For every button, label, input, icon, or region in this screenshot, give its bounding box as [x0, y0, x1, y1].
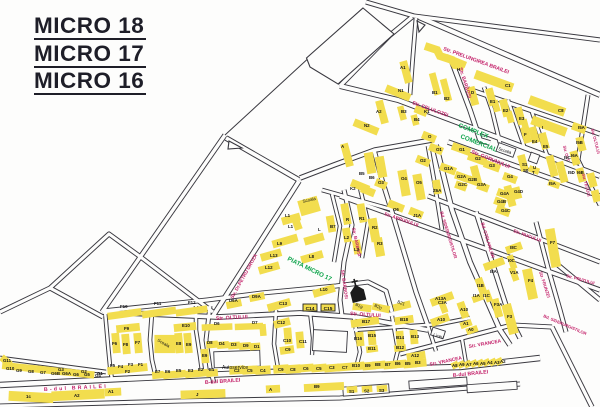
svg-text:L1: L1 [288, 224, 294, 229]
svg-text:A4: A4 [487, 360, 493, 365]
svg-text:C9: C9 [278, 367, 284, 372]
svg-text:E3: E3 [188, 368, 194, 373]
svg-text:G7: G7 [40, 370, 46, 375]
svg-text:A6: A6 [473, 361, 479, 366]
svg-text:G3: G3 [489, 163, 495, 168]
svg-text:R3: R3 [377, 241, 383, 246]
svg-text:G4C: G4C [501, 208, 511, 213]
svg-text:T: T [532, 170, 535, 175]
svg-text:C1: C1 [505, 83, 511, 88]
svg-text:G6: G6 [73, 372, 79, 377]
svg-text:B3: B3 [415, 360, 421, 365]
svg-text:S0: S0 [523, 168, 529, 173]
svg-text:E9: E9 [186, 342, 192, 347]
svg-text:C12: C12 [277, 320, 286, 325]
svg-text:Autoservice: Autoservice [222, 365, 248, 371]
svg-text:S1: S1 [349, 389, 355, 394]
svg-text:O2: O2 [420, 158, 426, 163]
svg-text:O5: O5 [416, 180, 422, 185]
svg-text:B14: B14 [396, 335, 405, 340]
svg-text:C13: C13 [279, 301, 288, 306]
svg-text:K2: K2 [350, 186, 356, 191]
svg-text:F6: F6 [112, 341, 118, 346]
svg-text:L2: L2 [344, 235, 350, 240]
svg-text:B4: B4 [414, 117, 420, 122]
svg-text:E8: E8 [176, 341, 182, 346]
svg-text:G4A: G4A [500, 191, 510, 196]
svg-text:G3A: G3A [477, 182, 487, 187]
svg-text:E2: E2 [198, 367, 204, 372]
svg-text:C9: C9 [285, 347, 291, 352]
svg-text:B8: B8 [375, 362, 381, 367]
svg-text:I: I [542, 125, 543, 130]
svg-text:S2: S2 [364, 389, 370, 394]
svg-text:B7: B7 [385, 362, 391, 367]
svg-text:H: H [457, 67, 460, 72]
svg-text:B2: B2 [444, 96, 450, 101]
svg-text:I5B: I5B [576, 140, 583, 145]
svg-text:A0: A0 [468, 327, 474, 332]
svg-text:G2C: G2C [458, 182, 468, 187]
svg-text:S3: S3 [379, 388, 385, 393]
svg-text:G3: G3 [58, 367, 64, 372]
svg-text:E5: E5 [176, 368, 182, 373]
svg-text:B11: B11 [368, 346, 376, 351]
svg-text:N1: N1 [398, 88, 404, 93]
svg-text:C11: C11 [299, 339, 307, 344]
svg-text:I1A: I1A [473, 293, 481, 298]
svg-text:G2B: G2B [468, 177, 477, 182]
svg-text:A2: A2 [376, 109, 382, 114]
svg-text:G2A: G2A [457, 174, 467, 179]
svg-text:F3A: F3A [494, 302, 503, 307]
svg-text:G8: G8 [28, 369, 34, 374]
svg-text:C6: C6 [303, 366, 309, 371]
svg-text:B12: B12 [396, 345, 405, 350]
svg-text:A9: A9 [459, 362, 465, 367]
svg-text:O1: O1 [436, 147, 442, 152]
svg-text:B5: B5 [405, 361, 411, 366]
svg-text:F7: F7 [135, 340, 141, 345]
svg-text:V1A: V1A [510, 270, 519, 275]
svg-text:A1: A1 [463, 321, 469, 326]
svg-text:D1: D1 [254, 344, 260, 349]
svg-text:B13: B13 [411, 334, 420, 339]
svg-text:G1: G1 [97, 371, 103, 376]
svg-text:C5: C5 [316, 366, 322, 371]
svg-text:E1: E1 [490, 99, 496, 104]
svg-text:F2: F2 [125, 369, 131, 374]
svg-text:F10: F10 [120, 304, 128, 309]
svg-text:1c: 1c [26, 394, 31, 399]
svg-text:I5A: I5A [578, 125, 586, 130]
svg-text:F7: F7 [550, 240, 556, 245]
svg-text:D9A: D9A [252, 294, 262, 299]
svg-text:O: O [428, 134, 432, 139]
svg-text:Z6A: Z6A [433, 188, 442, 193]
svg-text:B16: B16 [354, 336, 363, 341]
svg-text:L3: L3 [354, 247, 360, 252]
svg-text:F: F [524, 132, 527, 137]
svg-text:B6: B6 [395, 361, 401, 366]
svg-text:L1: L1 [285, 213, 291, 218]
svg-text:C8: C8 [558, 108, 564, 113]
svg-text:C8: C8 [290, 367, 296, 372]
svg-text:F11: F11 [154, 301, 162, 306]
svg-text:F3: F3 [507, 314, 513, 319]
svg-text:B9: B9 [365, 363, 371, 368]
svg-text:B3: B3 [401, 109, 407, 114]
svg-text:E5: E5 [543, 144, 549, 149]
svg-text:B1: B1 [432, 90, 438, 95]
svg-text:F3: F3 [128, 362, 134, 367]
svg-text:L10: L10 [320, 287, 328, 292]
svg-text:A1: A1 [400, 65, 406, 70]
svg-text:G1: G1 [459, 147, 465, 152]
svg-text:B18: B18 [400, 317, 409, 322]
svg-text:O4: O4 [401, 176, 407, 181]
svg-text:F8: F8 [123, 342, 129, 347]
svg-text:D: D [471, 90, 474, 95]
svg-text:L9: L9 [277, 241, 283, 246]
svg-text:K1: K1 [424, 109, 430, 114]
svg-text:F5: F5 [110, 363, 116, 368]
svg-text:G4D: G4D [514, 189, 523, 194]
svg-text:C4: C4 [260, 368, 266, 373]
svg-text:F9: F9 [124, 326, 130, 331]
svg-text:A10: A10 [437, 317, 446, 322]
svg-text:B9: B9 [314, 384, 320, 389]
svg-text:G2: G2 [475, 156, 481, 161]
svg-text:I5A: I5A [549, 181, 557, 186]
svg-text:O6: O6 [393, 207, 399, 212]
svg-text:E2: E2 [503, 108, 509, 113]
svg-text:E10: E10 [182, 323, 190, 328]
svg-text:A8: A8 [452, 363, 458, 368]
svg-text:C10: C10 [283, 338, 292, 343]
svg-text:I0C: I0C [508, 258, 516, 263]
svg-text:R2: R2 [372, 225, 378, 230]
svg-text:B15: B15 [368, 333, 377, 338]
svg-text:F1: F1 [138, 362, 144, 367]
svg-text:E4: E4 [532, 139, 538, 144]
svg-text:A5: A5 [480, 361, 486, 366]
svg-text:E9: E9 [202, 353, 208, 358]
svg-text:L8: L8 [309, 254, 315, 259]
svg-text:C3A: C3A [438, 300, 448, 305]
svg-text:I6A: I6A [571, 153, 579, 158]
svg-text:F12: F12 [188, 300, 196, 305]
svg-text:D7: D7 [252, 320, 258, 325]
svg-text:L12: L12 [265, 265, 273, 270]
svg-text:D4: D4 [219, 341, 225, 346]
svg-text:N2: N2 [364, 123, 370, 128]
svg-text:D8: D8 [207, 340, 213, 345]
svg-text:A12: A12 [411, 353, 420, 358]
svg-text:D9: D9 [243, 343, 249, 348]
svg-text:E3: E3 [519, 116, 525, 121]
svg-text:C14: C14 [306, 306, 315, 312]
svg-text:B7: B7 [330, 224, 336, 229]
svg-text:S1: S1 [522, 162, 528, 167]
svg-text:G4: G4 [507, 174, 513, 179]
svg-text:L: L [318, 227, 321, 232]
svg-text:G10: G10 [6, 366, 15, 371]
svg-text:I5D: I5D [568, 170, 575, 175]
svg-text:L13: L13 [270, 253, 278, 258]
svg-text:D6A: D6A [229, 298, 239, 303]
svg-text:I1C: I1C [483, 293, 491, 298]
svg-text:I8A: I8A [490, 269, 498, 274]
svg-text:A7: A7 [466, 362, 472, 367]
svg-text:D6: D6 [214, 321, 220, 326]
svg-text:E7: E7 [155, 369, 161, 374]
svg-text:F4: F4 [118, 364, 124, 369]
svg-text:J1A: J1A [413, 213, 422, 218]
svg-text:G9: G9 [16, 368, 22, 373]
svg-text:B10: B10 [352, 363, 361, 368]
svg-text:B17: B17 [362, 319, 371, 324]
svg-text:A2: A2 [74, 393, 80, 398]
svg-text:C15: C15 [324, 306, 333, 312]
svg-text:I6B: I6B [577, 170, 584, 175]
svg-text:I1B: I1B [477, 283, 484, 288]
svg-text:F4: F4 [528, 278, 534, 283]
svg-text:A2: A2 [500, 359, 506, 364]
svg-text:A10: A10 [460, 307, 469, 312]
svg-text:C7: C7 [342, 365, 348, 370]
svg-text:D3: D3 [231, 342, 237, 347]
svg-text:C3: C3 [329, 365, 335, 370]
svg-text:I8C: I8C [510, 245, 518, 250]
svg-text:B5: B5 [359, 171, 365, 176]
svg-text:O3: O3 [378, 180, 384, 185]
svg-text:G1A: G1A [444, 166, 454, 171]
svg-text:B6: B6 [369, 175, 375, 180]
svg-text:E1: E1 [209, 367, 215, 372]
svg-text:G11: G11 [3, 358, 12, 363]
svg-text:G2: G2 [81, 369, 87, 374]
svg-text:E6: E6 [165, 369, 171, 374]
svg-text:G4B: G4B [497, 199, 506, 204]
svg-text:A1: A1 [108, 389, 114, 394]
svg-text:R1: R1 [359, 216, 365, 221]
